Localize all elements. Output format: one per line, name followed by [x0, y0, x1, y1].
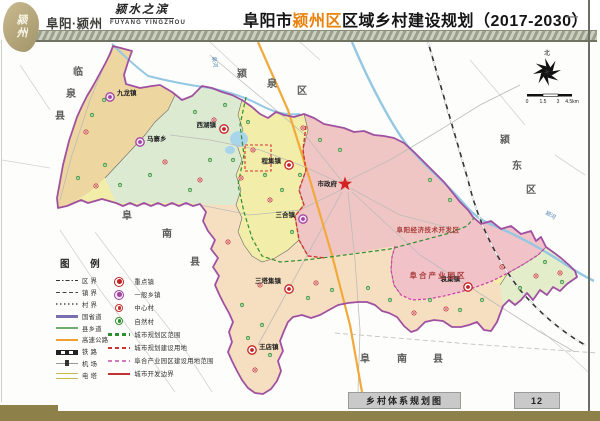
title-highlight: 颍州区 [293, 13, 343, 30]
central-village-dot [240, 177, 242, 179]
legend-row: 城市规划建设用地 [108, 341, 213, 354]
natural-village-dot [104, 164, 105, 165]
legend-icon-wrap [108, 290, 130, 300]
county-label-yingquan-district: 泉 [266, 77, 278, 90]
central-village-dot [445, 308, 447, 310]
legend: 图 例 区 界镇 界村 界国省道县乡道高速公路铁 路机 场电 塔 重点镇一般乡镇… [56, 256, 206, 381]
legend-column-left: 区 界镇 界村 界国省道县乡道高速公路铁 路机 场电 塔 [56, 275, 108, 381]
natural-village-dot [261, 324, 262, 325]
legend-cv-icon [115, 304, 123, 312]
seal-characters: 颍州 [13, 14, 29, 40]
county-label-yingquan-district: 颍 [236, 67, 248, 80]
legend-label: 铁 路 [82, 347, 97, 356]
left-border-line [1, 40, 2, 402]
natural-village-dot [561, 281, 562, 282]
city-government-label: 市政府 [318, 179, 338, 188]
legend-sample-boundary-village [56, 300, 78, 308]
central-village-dot [252, 149, 254, 151]
natural-village-dot [339, 149, 340, 150]
town-marker-dot [287, 163, 291, 167]
west-lake-south [225, 146, 235, 154]
legend-row: 机 场 [56, 358, 108, 370]
legend-sample-road-county [56, 324, 78, 332]
natural-village-marker [178, 93, 181, 96]
legend-sample-road-expressway [56, 336, 78, 344]
town-label: 西湖镇 [197, 120, 217, 129]
central-village-dot [315, 282, 317, 284]
natural-village-dot [179, 94, 180, 95]
legend-title: 图 例 [60, 256, 206, 270]
natural-village-dot [189, 189, 190, 190]
county-label-yingquan-district: 区 [297, 85, 308, 97]
town-marker-dot [108, 95, 112, 99]
natural-village-dot [291, 231, 292, 232]
compass-rose [533, 58, 561, 86]
legend-row: 自然村 [108, 315, 213, 328]
central-village-marker [350, 316, 354, 320]
central-village-dot [254, 369, 256, 371]
legend-sample-dash-red [108, 344, 130, 352]
central-village-marker [364, 106, 368, 110]
legend-label: 区 界 [82, 276, 97, 285]
central-village-dot [501, 266, 503, 268]
legend-label: 国省道 [82, 312, 102, 321]
slogan-calligraphy: 颍水之滨 [110, 1, 174, 17]
planning-map-page: 北 临泉县颍泉区颍东区阜南县阜南县 九龙镇马寨乡西湖镇程集镇三合镇三塔集镇王店镇… [0, 0, 600, 421]
braided-divider-band [26, 30, 597, 42]
natural-village-dot [281, 189, 282, 190]
natural-village-dot [247, 121, 248, 122]
page-title: 阜阳市颍州区区域乡村建设规划（2017-2030） [243, 7, 588, 31]
central-village-dot [559, 272, 561, 274]
legend-label: 镇 界 [82, 288, 97, 297]
legend-label: 县乡道 [82, 324, 102, 333]
town-label: 马寨乡 [147, 134, 167, 143]
legend-label: 高速公路 [82, 335, 108, 344]
legend-label: 重点镇 [134, 277, 154, 286]
central-village-dot [535, 275, 537, 277]
legend-row: 铁 路 [56, 346, 108, 358]
legend-sample-line-red [108, 370, 130, 378]
natural-village-dot [264, 174, 265, 175]
county-label-funan-county-south: 南 [397, 352, 408, 365]
natural-village-dot [359, 94, 360, 95]
town-label: 程集镇 [261, 156, 282, 165]
central-village-dot [302, 127, 304, 129]
natural-village-dot [232, 159, 233, 160]
central-village-dot [95, 185, 97, 187]
natural-village-dot [307, 297, 308, 298]
legend-nv-icon [115, 317, 123, 325]
legend-label: 一般乡镇 [134, 290, 160, 299]
natural-village-dot [194, 111, 195, 112]
central-village-dot [269, 199, 271, 201]
town-marker-dot [466, 285, 470, 289]
central-village-dot [213, 119, 215, 121]
legend-row: 区 界 [56, 275, 108, 287]
decorative-dash: — [566, 9, 578, 23]
natural-village-dot [449, 199, 450, 200]
natural-village-dot [481, 299, 482, 300]
natural-village-dot [389, 299, 390, 300]
slogan-english: FUYANG YINGZHOU [110, 20, 174, 26]
legend-sample-airport [56, 359, 78, 367]
central-village-dot [164, 161, 166, 163]
central-village-dot [227, 241, 229, 243]
legend-row: 城市规划区范围 [108, 328, 213, 341]
town-marker-dot [301, 217, 305, 221]
legend-sample-powerline [56, 371, 78, 379]
natural-village-dot [119, 184, 120, 185]
natural-village-dot [269, 354, 270, 355]
county-label-funan-county-west: 南 [162, 227, 173, 240]
town-marker-dot [138, 140, 142, 144]
legend-sample-road-national [56, 312, 78, 320]
legend-label: 城市规划建设用地 [134, 343, 187, 352]
natural-village-dot [103, 99, 104, 100]
scale-tick-label: 1.5 [540, 99, 547, 105]
page-number-box: 12 [514, 392, 560, 409]
legend-label: 机 场 [82, 359, 97, 368]
zone-label: 阜阳经济技术开发区 [397, 225, 460, 234]
county-label-funan-county-south: 县 [433, 353, 444, 365]
scale-bar [527, 94, 572, 97]
central-village-dot [413, 312, 415, 314]
slogan-block: 颍水之滨 FUYANG YINGZHOU [110, 1, 174, 26]
county-label-funan-county-south: 阜 [360, 352, 371, 365]
header: 阜阳·颍州 颍水之滨 FUYANG YINGZHOU 阜阳市颍州区区域乡村建设规… [0, 0, 600, 30]
scale-labels: 01.534.5km [526, 99, 579, 105]
legend-town-icon [114, 290, 124, 300]
title-prefix: 阜阳市 [243, 13, 293, 30]
natural-village-dot [429, 299, 430, 300]
county-label-linquan-county: 泉 [65, 87, 77, 100]
legend-icon-wrap [108, 277, 130, 287]
legend-key-icon [114, 277, 124, 287]
scale-tick-label: 3 [557, 99, 560, 105]
legend-row: 一般乡镇 [108, 288, 213, 301]
legend-label: 城市开发边界 [134, 369, 174, 378]
legend-sample-railway [56, 348, 78, 356]
central-village-dot [365, 107, 367, 109]
legend-label: 电 塔 [82, 371, 97, 380]
county-label-linquan-county: 县 [55, 110, 66, 122]
map-title-box: 乡村体系规划图 [348, 392, 461, 409]
central-village-dot [199, 179, 201, 181]
central-village-marker [330, 95, 334, 99]
natural-village-dot [299, 174, 300, 175]
natural-village-dot [224, 104, 225, 105]
natural-village-dot [91, 114, 92, 115]
legend-label: 阜合产业园区建设用地范围 [134, 356, 213, 365]
legend-row: 镇 界 [56, 287, 108, 299]
right-border-line [588, 0, 590, 412]
legend-sample-boundary-district [56, 277, 78, 285]
county-label-yingdong-district: 区 [526, 184, 537, 196]
legend-sample-boundary-town [56, 289, 78, 297]
title-suffix: 区域乡村建设规划（2017-2030） [342, 13, 588, 30]
town-marker-dot [287, 287, 291, 291]
natural-village-dot [77, 177, 78, 178]
legend-row: 县乡道 [56, 322, 108, 334]
scale-tick-label: 4.5km [565, 99, 579, 105]
legend-icon-wrap [108, 304, 130, 312]
legend-row: 高速公路 [56, 334, 108, 346]
town-label: 九龙镇 [116, 88, 137, 97]
town-label: 三塔集镇 [255, 276, 282, 285]
zone-label: 阜合产业园区 [410, 270, 467, 280]
legend-icon-wrap [108, 317, 130, 325]
legend-column-right: 重点镇一般乡镇中心村自然村城市规划区范围城市规划建设用地阜合产业园区建设用地范围… [108, 275, 213, 381]
town-label: 王店镇 [259, 342, 279, 351]
natural-village-dot [331, 289, 332, 290]
town-marker-dot [250, 348, 254, 352]
natural-village-marker [358, 93, 361, 96]
natural-village-dot [459, 309, 460, 310]
county-label-yingdong-district: 东 [512, 159, 523, 172]
legend-sample-dash-pink [108, 357, 130, 365]
central-village-dot [331, 96, 333, 98]
central-village-marker [286, 336, 290, 340]
river-label: 颍河 [544, 209, 558, 222]
natural-village-dot [319, 139, 320, 140]
natural-village-dot [149, 174, 150, 175]
natural-village-dot [429, 179, 430, 180]
legend-row: 村 界 [56, 299, 108, 311]
natural-village-dot [247, 337, 248, 338]
legend-row: 城市开发边界 [108, 367, 213, 380]
county-label-yingdong-district: 颍 [499, 133, 511, 146]
legend-label: 村 界 [82, 300, 97, 309]
legend-label: 城市规划区范围 [134, 330, 180, 339]
natural-village-dot [209, 159, 210, 160]
central-village-dot [351, 317, 353, 319]
natural-village-dot [519, 287, 520, 288]
legend-sample-dash-green [108, 330, 130, 338]
central-village-dot [287, 337, 289, 339]
scale-tick-label: 0 [526, 99, 529, 105]
natural-village-dot [544, 261, 545, 262]
legend-row: 重点镇 [108, 275, 213, 288]
town-marker-dot [222, 127, 226, 131]
county-label-linquan-county: 临 [73, 65, 84, 78]
legend-row: 电 塔 [56, 369, 108, 381]
natural-village-dot [241, 304, 242, 305]
central-village-dot [85, 131, 87, 133]
county-label-funan-county-west: 阜 [122, 209, 133, 222]
footer-bar [0, 411, 600, 421]
town-label: 三合镇 [276, 210, 296, 219]
legend-row: 中心村 [108, 301, 213, 314]
legend-row: 阜合产业园区建设用地范围 [108, 354, 213, 367]
yingzhou-seal-logo: 颍州 [3, 2, 39, 52]
compass-north-label: 北 [544, 49, 550, 57]
legend-row: 国省道 [56, 310, 108, 322]
natural-village-dot [367, 287, 368, 288]
slogan-divider [110, 18, 174, 19]
legend-label: 中心村 [134, 303, 154, 312]
legend-label: 自然村 [134, 317, 154, 326]
